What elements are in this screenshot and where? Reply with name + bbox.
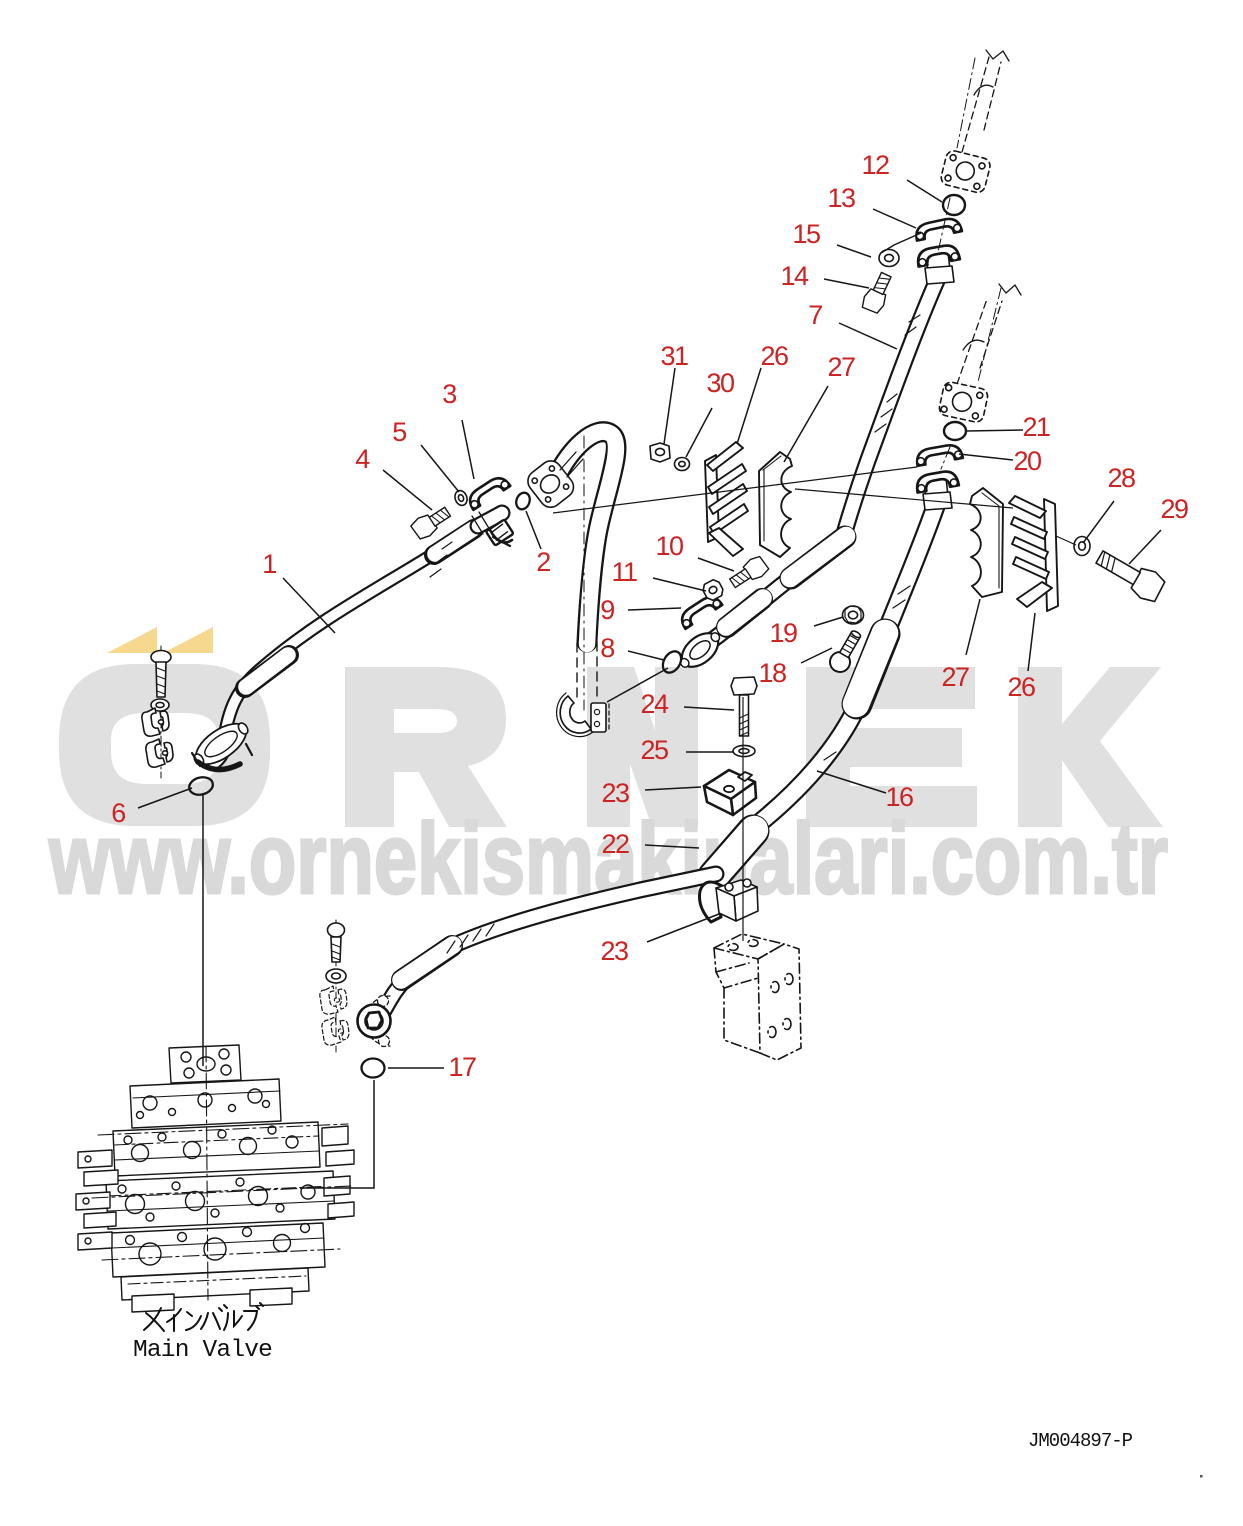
svg-text:20: 20: [1013, 446, 1041, 476]
svg-text:Main Valve: Main Valve: [133, 1337, 272, 1364]
svg-text:12: 12: [861, 150, 889, 180]
svg-text:6: 6: [111, 798, 125, 828]
svg-text:18: 18: [758, 658, 786, 688]
svg-text:8: 8: [600, 633, 614, 663]
svg-text:25: 25: [640, 735, 668, 765]
svg-text:23: 23: [600, 936, 628, 966]
svg-text:JM004897-P: JM004897-P: [1028, 1430, 1133, 1452]
svg-text:31: 31: [660, 341, 688, 371]
svg-text:23: 23: [601, 778, 629, 808]
svg-text:15: 15: [792, 219, 820, 249]
svg-text:27: 27: [941, 662, 969, 692]
svg-text:9: 9: [600, 595, 614, 625]
svg-text:13: 13: [827, 183, 855, 213]
svg-text:1: 1: [262, 549, 276, 579]
svg-text:30: 30: [706, 368, 734, 398]
svg-text:14: 14: [780, 261, 809, 291]
svg-text:2: 2: [536, 547, 550, 577]
svg-text:19: 19: [769, 618, 797, 648]
svg-text:27: 27: [827, 352, 855, 382]
svg-text:28: 28: [1107, 463, 1135, 493]
svg-text:11: 11: [611, 557, 637, 587]
svg-text:29: 29: [1160, 494, 1188, 524]
svg-text:26: 26: [1007, 672, 1035, 702]
svg-text:17: 17: [448, 1052, 476, 1082]
svg-text:26: 26: [760, 341, 788, 371]
svg-text:10: 10: [655, 531, 683, 561]
svg-text:22: 22: [601, 829, 629, 859]
svg-text:7: 7: [808, 300, 822, 330]
svg-text:3: 3: [442, 379, 456, 409]
svg-text:4: 4: [355, 444, 370, 474]
svg-text:21: 21: [1022, 412, 1050, 442]
svg-text:5: 5: [392, 417, 406, 447]
svg-text:24: 24: [640, 689, 669, 719]
svg-text:16: 16: [885, 782, 913, 812]
